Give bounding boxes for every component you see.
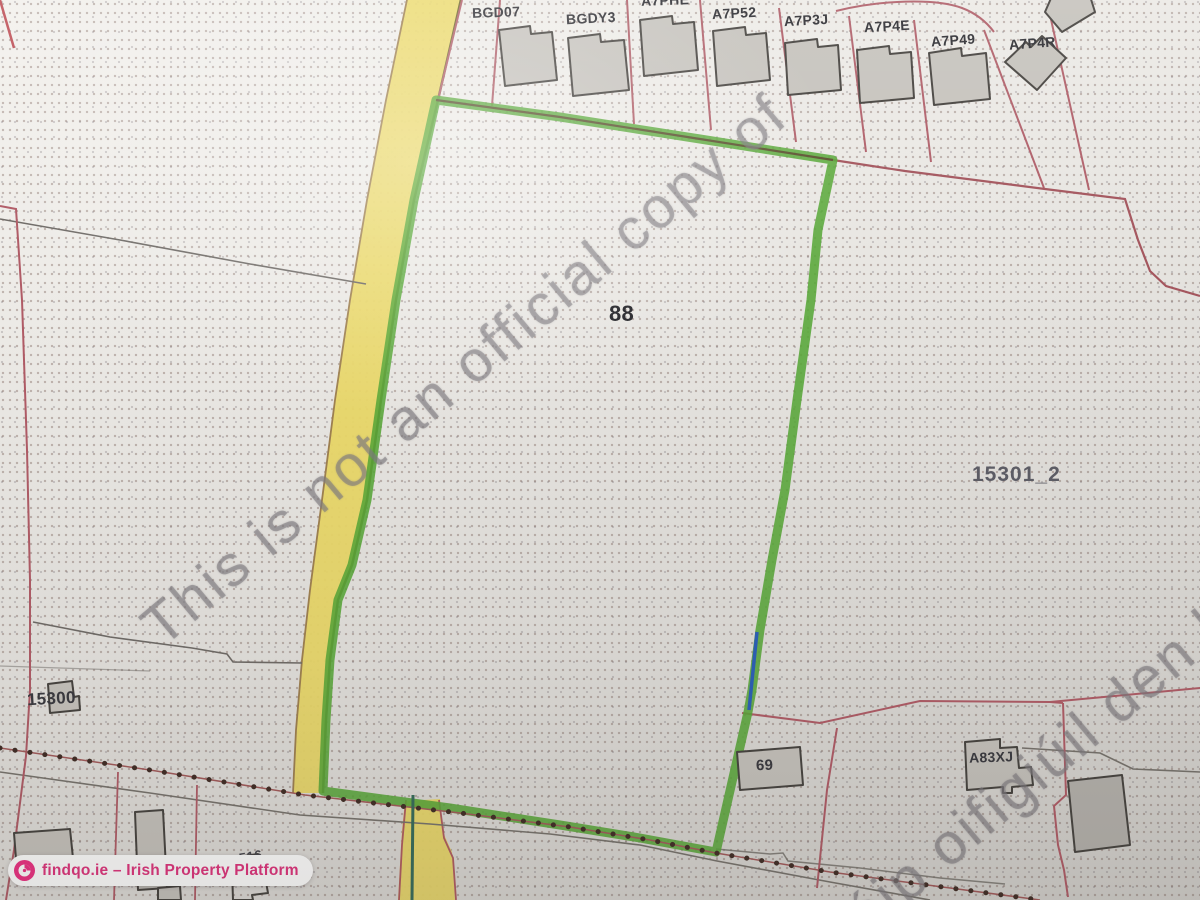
building-se-gray (1068, 775, 1130, 852)
house-bgdy3 (568, 34, 629, 96)
plot-label-a7p4e: A7P4E (864, 18, 911, 34)
field-line-southeast (1022, 748, 1200, 772)
boundary-red-left (0, 206, 30, 900)
road-yellow-south (398, 799, 455, 900)
plot-label-a7phe: A7PHE (641, 0, 690, 8)
building-a83xj (965, 739, 1033, 793)
plot-label-a7p52: A7P52 (712, 5, 757, 21)
plot-label-a7p4r: A7P4R (1009, 34, 1057, 51)
field-line-left (33, 622, 302, 663)
field-line-left-faint (0, 666, 150, 671)
house-a7p4e (857, 46, 914, 103)
house-a7p52 (713, 27, 770, 86)
field-line-topleft (0, 219, 366, 284)
findqo-badge-text: findqo.ie – Irish Property Platform (42, 862, 299, 880)
boundary-red-69-diagonal (817, 728, 837, 888)
plot-label-bgd07: BGD07 (472, 4, 521, 20)
road-north-gray-edge (716, 849, 1005, 884)
building-bl-3 (158, 886, 181, 900)
parcel-label-15300: 15300 (27, 689, 77, 709)
boundary-red-a83xj-east (1054, 703, 1068, 897)
road-median-teal (412, 795, 413, 900)
boundary-red-69-parcel (742, 701, 1063, 723)
parcel-label-15301-2: 15301_2 (972, 464, 1061, 485)
house-a7phe (640, 16, 698, 76)
findqo-logo-icon (14, 860, 35, 881)
parcel-label-a83xj: A83XJ (969, 749, 1014, 765)
house-a7p3j (785, 39, 841, 95)
parcel-label-69: 69 (756, 758, 774, 774)
plot-label-bgdy3: BGDY3 (566, 10, 616, 27)
boundary-red-corner-sliver (0, 0, 14, 48)
plot-label-a7p3j: A7P3J (784, 12, 829, 28)
parcel-label-88: 88 (609, 303, 634, 325)
estate-plot-dividers (438, 0, 1089, 190)
house-a7p49 (929, 48, 990, 105)
findqo-badge: findqo.ie – Irish Property Platform (8, 855, 313, 886)
boundary-red-right-exit (1050, 688, 1200, 702)
boundary-red-northeast (833, 160, 1200, 296)
map-photo: BGD07 BGDY3 A7PHE A7P52 A7P3J A7P4E A7P4… (0, 0, 1200, 900)
house-bgd07 (499, 26, 557, 86)
map-drawing (0, 0, 1200, 900)
plot-label-a7p49: A7P49 (931, 31, 976, 48)
